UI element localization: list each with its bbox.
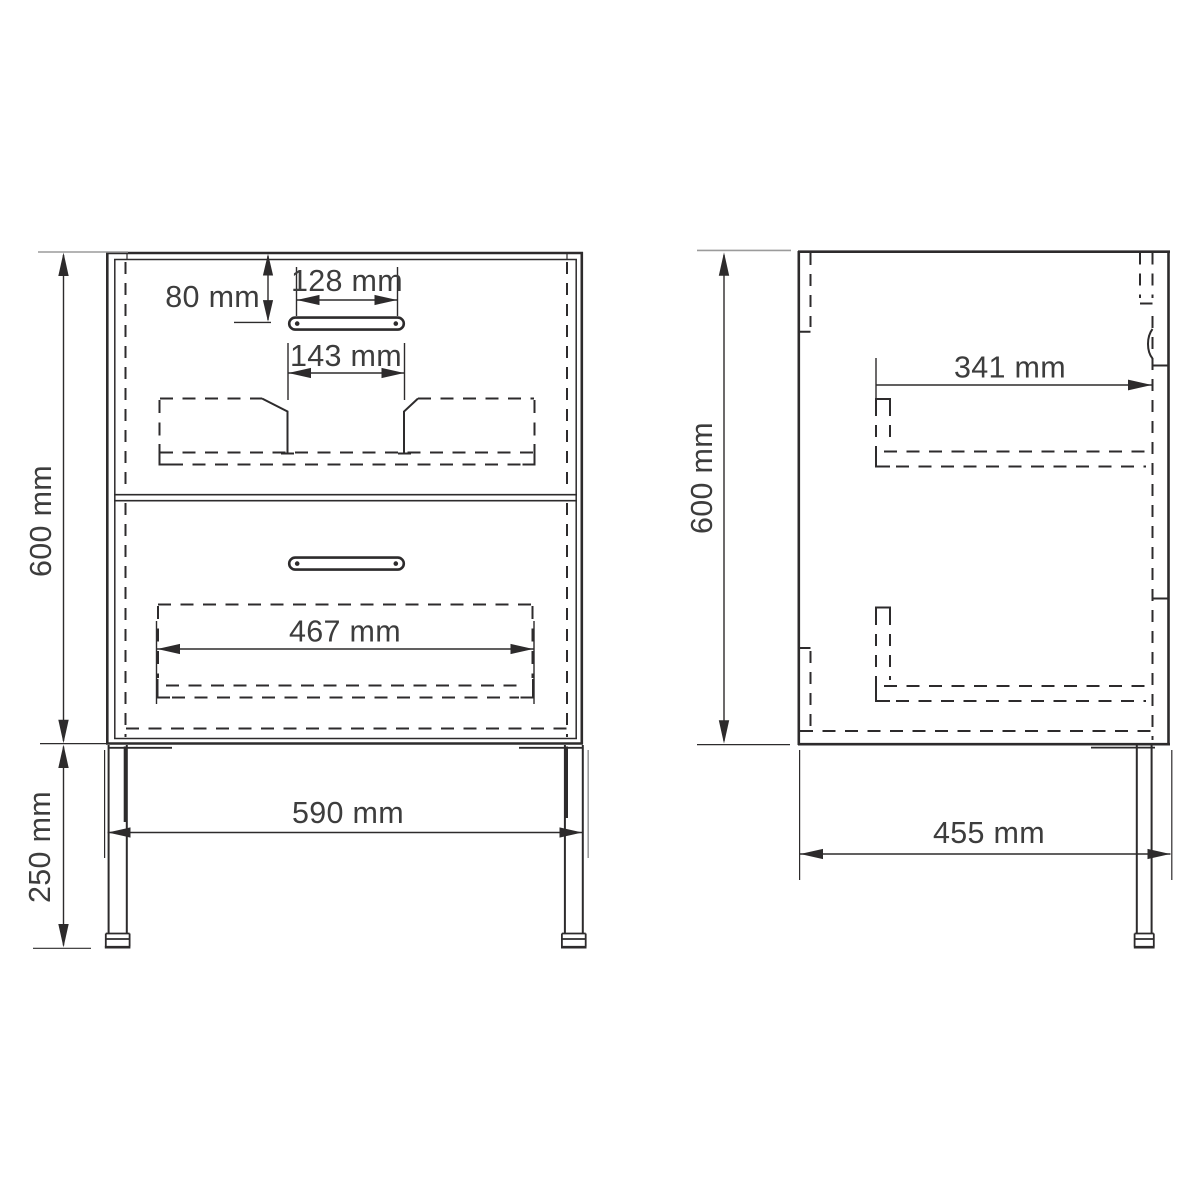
arrowhead-right	[1148, 849, 1171, 859]
technical-drawing-page: 80 mm 128 mm 143 mm 600 mm	[0, 0, 1200, 1200]
dim-front-top-to-handle: 80 mm	[165, 254, 273, 323]
dim-label: 128 mm	[291, 264, 403, 298]
dim-label: 341 mm	[954, 351, 1066, 385]
handle-screw-icon	[295, 321, 300, 326]
arrowhead-down	[263, 300, 273, 322]
dim-label: 455 mm	[933, 816, 1045, 850]
body-outline-thick	[106, 252, 583, 744]
top-drawer-hidden-lines	[160, 399, 535, 465]
drawing-canvas: 80 mm 128 mm 143 mm 600 mm	[0, 0, 1200, 1200]
handle-outline	[289, 558, 404, 570]
arrowhead-left	[800, 849, 823, 859]
handle-screw-icon	[394, 321, 399, 326]
slide-rail-solid	[160, 399, 535, 465]
dim-front-drawer-inner-width: 467 mm	[157, 615, 535, 705]
arrowhead-right	[560, 827, 583, 837]
handle-outline	[289, 318, 404, 330]
dim-label: 80 mm	[165, 280, 260, 314]
dim-front-width: 590 mm	[108, 796, 583, 838]
dim-front-body-height: 600 mm	[24, 252, 128, 743]
dim-side-body-height: 600 mm	[685, 250, 791, 744]
front-right-leg	[519, 745, 588, 947]
arrowhead-up	[263, 254, 273, 276]
arrowhead-down	[719, 720, 729, 743]
side-hidden-lines	[799, 253, 1169, 741]
slide-rail-solid	[158, 679, 534, 698]
handle-screw-icon	[394, 561, 399, 566]
drawer-divider	[114, 495, 577, 501]
hidden-drawerbox-sides	[126, 262, 568, 737]
front-view: 80 mm 128 mm 143 mm 600 mm	[23, 252, 588, 948]
arrowhead-up	[719, 252, 729, 275]
hidden-dashed	[160, 399, 535, 465]
arrowhead-down	[58, 924, 68, 947]
side-view: 341 mm 600 mm 455 mm	[685, 250, 1172, 947]
dim-label: 600 mm	[685, 422, 719, 534]
front-left-leg	[105, 745, 172, 947]
bottom-drawer-handle	[289, 558, 404, 570]
dim-label: 143 mm	[290, 339, 402, 373]
leg-plate-and-foot	[106, 748, 172, 947]
arrowhead-right	[1128, 380, 1152, 391]
dim-side-inner-depth: 341 mm	[876, 351, 1152, 405]
body-outline-thick	[798, 251, 1170, 745]
dim-label: 600 mm	[24, 465, 58, 577]
leg-sides	[1137, 745, 1152, 933]
dim-label: 467 mm	[289, 615, 401, 649]
arrowhead-right	[511, 644, 534, 654]
dim-front-handle-clearance: 143 mm	[288, 339, 405, 400]
dim-side-depth: 455 mm	[800, 816, 1171, 859]
dim-label: 250 mm	[23, 791, 57, 903]
handle-screw-icon	[295, 561, 300, 566]
body-outline-inner	[114, 260, 577, 739]
arrowhead-left	[157, 644, 180, 654]
dim-label: 590 mm	[292, 796, 404, 830]
top-drawer-handle	[289, 318, 404, 330]
arrowhead-up	[58, 253, 68, 276]
side-cabinet-body	[798, 251, 1170, 745]
arrowhead-up	[58, 745, 68, 768]
leg-plate-and-foot	[519, 748, 586, 947]
leg-plate-and-foot	[1091, 748, 1155, 947]
arrowhead-left	[108, 827, 131, 837]
dim-front-leg-height: 250 mm	[23, 744, 106, 949]
front-cabinet-body	[106, 252, 583, 744]
arrowhead-down	[58, 720, 68, 743]
hidden-dashed-vertical	[811, 253, 1153, 741]
dim-front-handle-width: 128 mm	[291, 264, 403, 316]
